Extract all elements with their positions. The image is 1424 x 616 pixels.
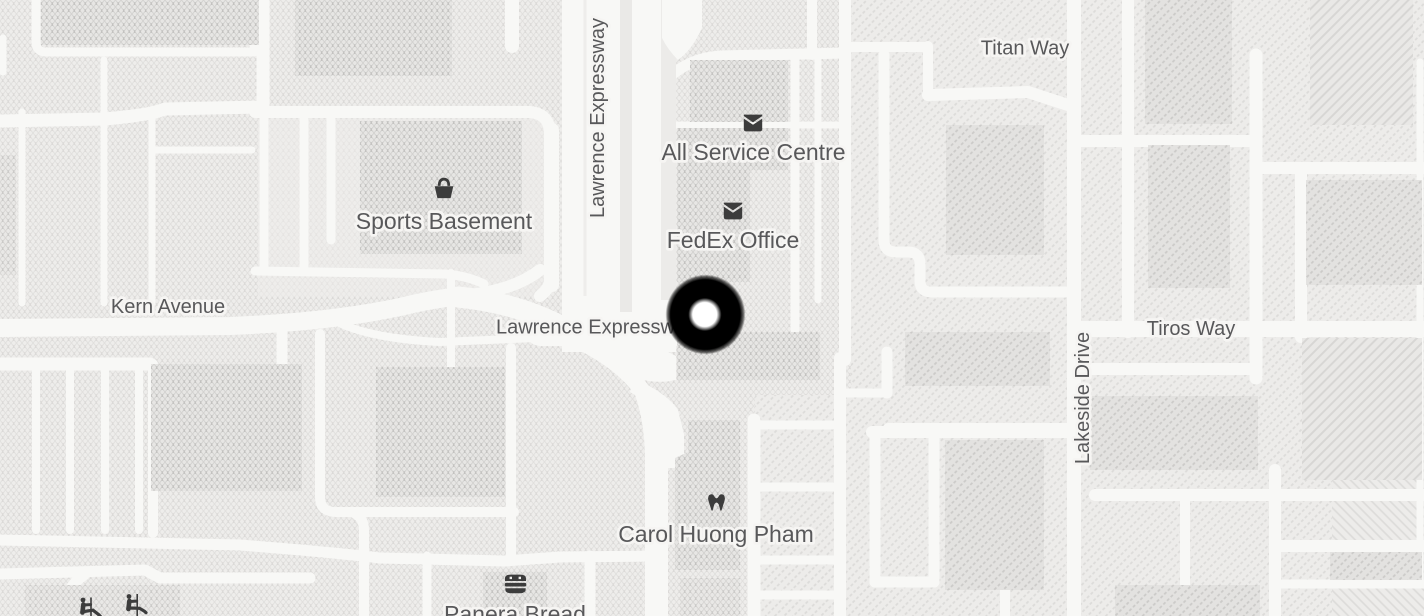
svg-text:All Service Centre: All Service Centre: [661, 139, 845, 165]
svg-text:Panera Bread: Panera Bread: [444, 601, 586, 616]
svg-text:Sports Basement: Sports Basement: [356, 208, 533, 234]
svg-text:Titan Way: Titan Way: [981, 38, 1070, 60]
svg-text:Tiros Way: Tiros Way: [1147, 318, 1236, 340]
svg-text:Lakeside Drive: Lakeside Drive: [1072, 332, 1094, 464]
svg-text:Kern Avenue: Kern Avenue: [111, 296, 225, 318]
svg-text:FedEx Office: FedEx Office: [667, 227, 800, 253]
svg-text:Lawrence Expressway: Lawrence Expressway: [587, 18, 609, 218]
svg-text:Carol Huong Pham: Carol Huong Pham: [618, 521, 814, 547]
